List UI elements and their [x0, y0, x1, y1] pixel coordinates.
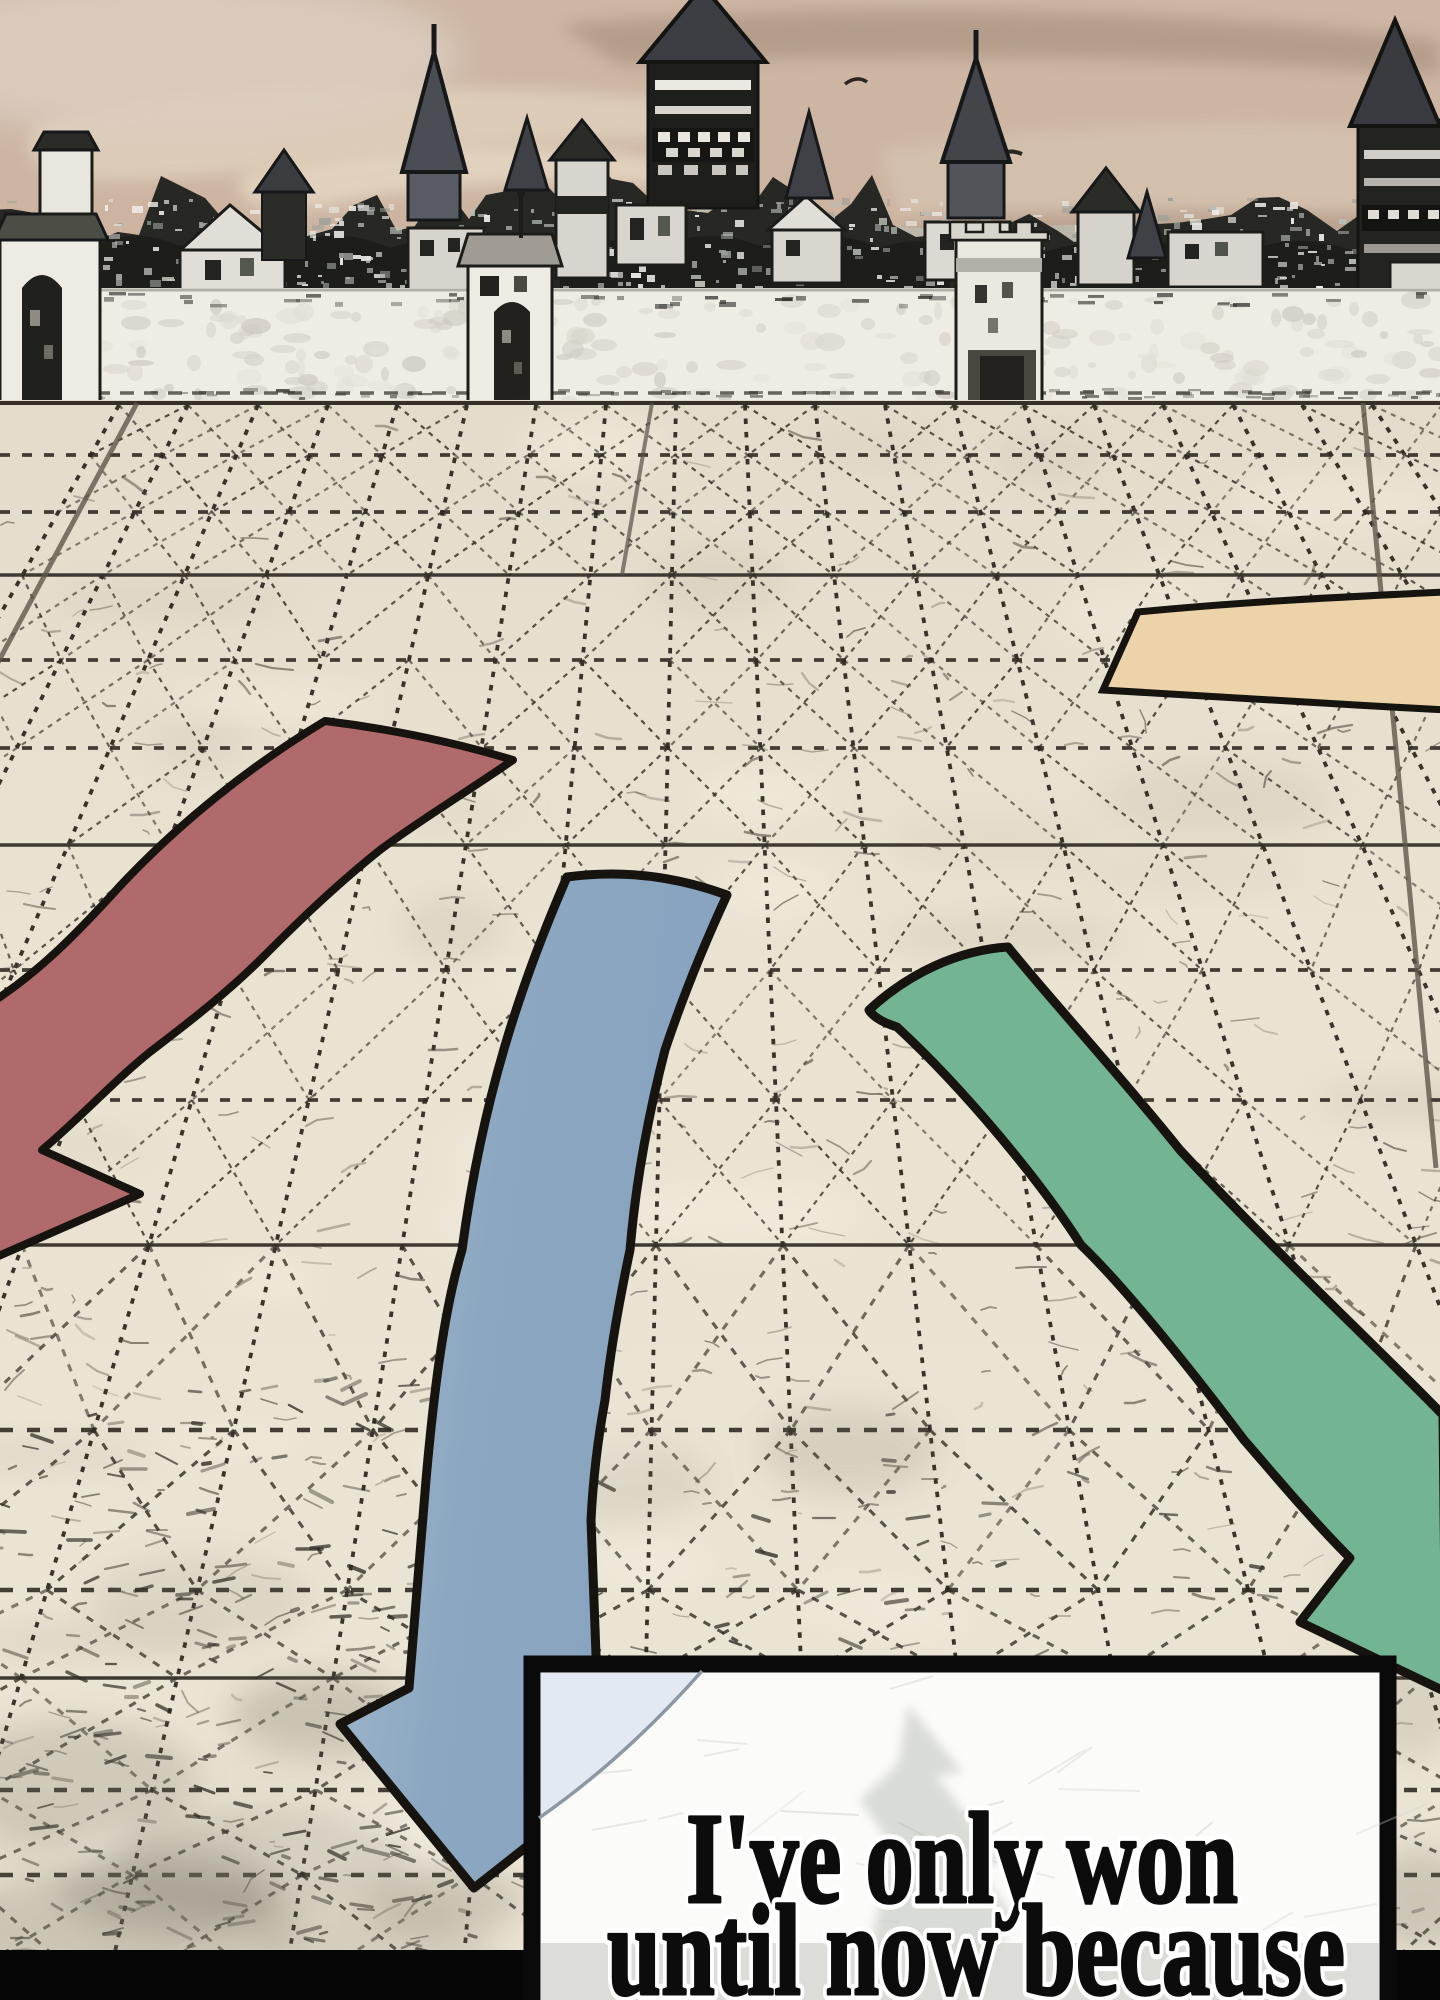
svg-text:until now because: until now because [607, 1879, 1345, 2000]
